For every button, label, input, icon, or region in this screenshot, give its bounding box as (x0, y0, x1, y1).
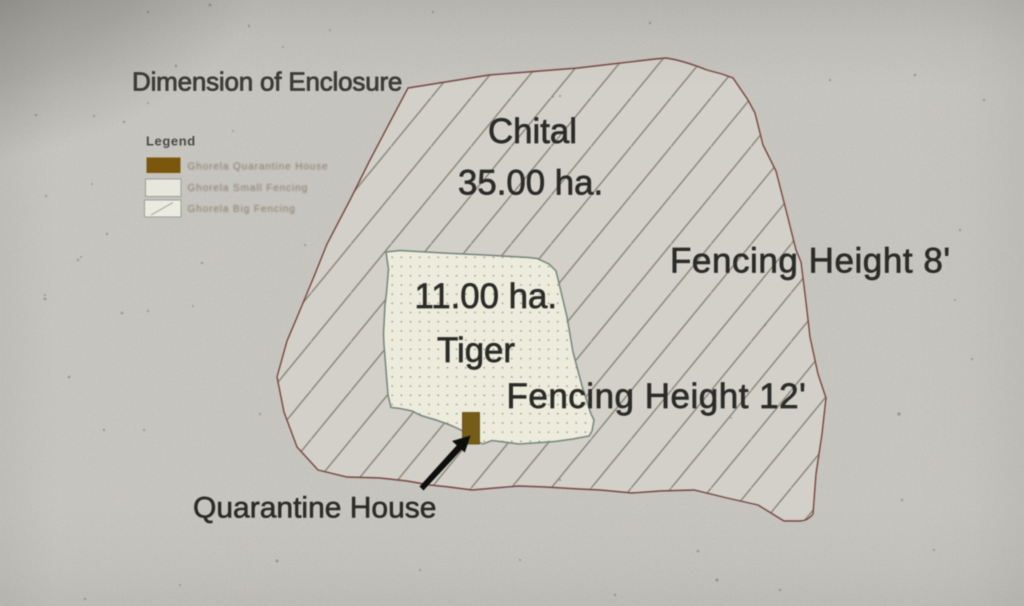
svg-text:Fencing Height 8': Fencing Height 8' (670, 242, 951, 281)
svg-text:11.00 ha.: 11.00 ha. (415, 277, 558, 316)
svg-text:35.00 ha.: 35.00 ha. (458, 164, 603, 203)
svg-text:Dimension of Enclosure: Dimension of Enclosure (132, 67, 402, 97)
svg-text:Ghorela Quarantine House: Ghorela Quarantine House (188, 162, 329, 173)
svg-text:Chital: Chital (488, 112, 577, 151)
svg-text:Ghorela Big Fencing: Ghorela Big Fencing (188, 204, 296, 215)
svg-text:Tiger: Tiger (437, 331, 515, 370)
svg-text:Ghorela Small Fencing: Ghorela Small Fencing (188, 183, 309, 194)
svg-text:Quarantine House: Quarantine House (193, 492, 437, 525)
svg-text:Legend: Legend (146, 134, 196, 149)
svg-text:Fencing Height 12': Fencing Height 12' (507, 377, 807, 416)
